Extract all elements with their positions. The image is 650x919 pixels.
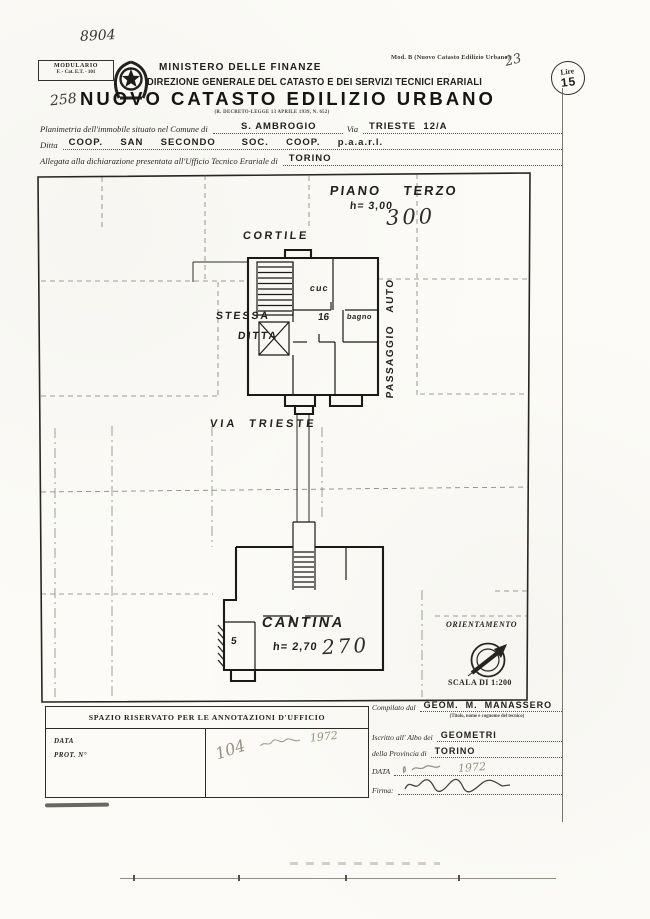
scan-bottom-tick bbox=[458, 875, 460, 881]
compiler-data-line: 1972 bbox=[394, 761, 562, 776]
provincia-label: della Provincia di bbox=[372, 749, 431, 758]
passaggio-auto-label: PASSAGGIO AUTO bbox=[385, 266, 396, 399]
form-row-ufficio: Allegata alla dichiarazione presentata a… bbox=[40, 153, 562, 166]
courtyard-lines bbox=[193, 262, 309, 522]
modulario-box: MODULARIO F. - Cat. E.T. - 101 bbox=[38, 60, 114, 81]
cadastral-document: 8904 Mod. B (Nuovo Catasto Edilizio Urba… bbox=[0, 0, 650, 919]
ditta-plan-label: DITTA bbox=[237, 330, 278, 342]
room16-label: 16 bbox=[317, 312, 329, 323]
cantina-area-handwritten: 270 bbox=[321, 633, 369, 659]
comune-value: S. AMBROGIO bbox=[213, 121, 343, 134]
compiler-data-stamp: 1972 bbox=[458, 760, 487, 775]
title-law-reference: (R. DECRETO-LEGGE 13 APRILE 1939, N. 652… bbox=[196, 110, 348, 115]
boundary-lines-dashdot bbox=[55, 426, 422, 698]
albo-label: Iscritto all' Albo dei bbox=[372, 733, 437, 742]
lire-stamp-value: 15 bbox=[560, 75, 577, 89]
cucina-label: cuc bbox=[309, 283, 329, 293]
via-label: Via bbox=[343, 124, 363, 134]
compiler-name: GEOM. M. MANASSERO bbox=[420, 700, 562, 712]
mod-b-label: Mod. B (Nuovo Catasto Edilizio Urbano) bbox=[391, 54, 510, 61]
comune-label: Planimetria dell'immobile situato nel Co… bbox=[40, 124, 213, 134]
office-box-divider bbox=[205, 729, 206, 798]
orientamento-label: ORIENTAMENTO bbox=[446, 620, 517, 629]
compiler-row-data: DATA 1972 bbox=[372, 761, 562, 776]
bagno-label: bagno bbox=[347, 312, 373, 321]
compiler-data-label: DATA bbox=[372, 767, 394, 776]
compilato-label: Compilato dal bbox=[372, 703, 420, 712]
scan-bottom-tick bbox=[238, 875, 240, 881]
office-box-header: SPAZIO RISERVATO PER LE ANNOTAZIONI D'UF… bbox=[46, 707, 368, 729]
ufficio-value: TORINO bbox=[283, 153, 562, 166]
cantina-title: CANTINA bbox=[261, 615, 347, 631]
scale-label: SCALA DI 1:200 bbox=[448, 678, 512, 687]
ufficio-label: Allegata alla dichiarazione presentata a… bbox=[40, 156, 283, 166]
albo-value: GEOMETRI bbox=[437, 730, 562, 742]
room5-label: 5 bbox=[230, 636, 239, 647]
scan-bottom-line bbox=[120, 878, 556, 879]
ministry-name: MINISTERO DELLE FINANZE bbox=[159, 62, 322, 73]
provincia-value: TORINO bbox=[431, 746, 562, 758]
cantina-height: h= 2,70 bbox=[272, 641, 318, 653]
scan-bottom-tick bbox=[345, 875, 347, 881]
compiler-row-albo: Iscritto all' Albo dei GEOMETRI bbox=[372, 730, 562, 742]
modulario-line2: F. - Cat. E.T. - 101 bbox=[39, 70, 113, 76]
firma-label: Firma: bbox=[372, 786, 398, 795]
office-prot-label: PROT. N° bbox=[54, 751, 87, 759]
date-stamp-scrawl bbox=[398, 761, 456, 774]
modulario-line1: MODULARIO bbox=[39, 63, 113, 70]
firma-line bbox=[398, 776, 562, 795]
office-box-header-text: SPAZIO RISERVATO PER LE ANNOTAZIONI D'UF… bbox=[89, 713, 326, 722]
stessa-label: STESSA bbox=[215, 310, 270, 322]
form-row-ditta: Ditta COOP. SAN SECONDO SOC. COOP. p.a.a… bbox=[40, 137, 562, 150]
form-row-comune: Planimetria dell'immobile situato nel Co… bbox=[40, 121, 562, 134]
scan-bottom-tick bbox=[133, 875, 135, 881]
handwritten-number-258: 258 bbox=[49, 91, 77, 110]
handwritten-ref: 8904 bbox=[80, 27, 116, 45]
document-title: NUOVO CATASTO EDILIZIO URBANO bbox=[80, 88, 496, 110]
direzione-generale: DIREZIONE GENERALE DEL CATASTO E DEI SER… bbox=[147, 77, 482, 88]
via-trieste-label: VIA TRIESTE bbox=[209, 418, 317, 430]
office-annotations-box: SPAZIO RISERVATO PER LE ANNOTAZIONI D'UF… bbox=[45, 706, 369, 798]
scan-smudge bbox=[290, 862, 440, 865]
terzo-title: PIANO TERZO bbox=[329, 183, 458, 198]
cortile-label: CORTILE bbox=[242, 230, 309, 242]
compass-icon bbox=[468, 644, 507, 677]
compiler-name-note: (Titolo, nome e cognome del tecnico) bbox=[412, 714, 562, 719]
ditta-label: Ditta bbox=[40, 140, 63, 150]
terzo-inner-walls bbox=[257, 258, 378, 395]
compiler-row-name: Compilato dal GEOM. M. MANASSERO bbox=[372, 700, 562, 712]
terzo-area-handwritten: 300 bbox=[386, 204, 436, 230]
scan-edge-line-right bbox=[562, 88, 563, 822]
compiler-row-firma: Firma: bbox=[372, 776, 562, 795]
lire-stamp: Lire 15 bbox=[549, 59, 587, 97]
ditta-value: COOP. SAN SECONDO SOC. COOP. p.a.a.r.l. bbox=[63, 137, 562, 150]
via-value: TRIESTE 12/A bbox=[363, 121, 562, 134]
compiler-row-provincia: della Provincia di TORINO bbox=[372, 746, 562, 758]
signature-scrawl bbox=[402, 776, 514, 793]
printer-imprint bbox=[45, 803, 109, 807]
handwritten-page-number: 23 bbox=[503, 51, 523, 70]
office-data-label: DATA bbox=[54, 737, 74, 745]
